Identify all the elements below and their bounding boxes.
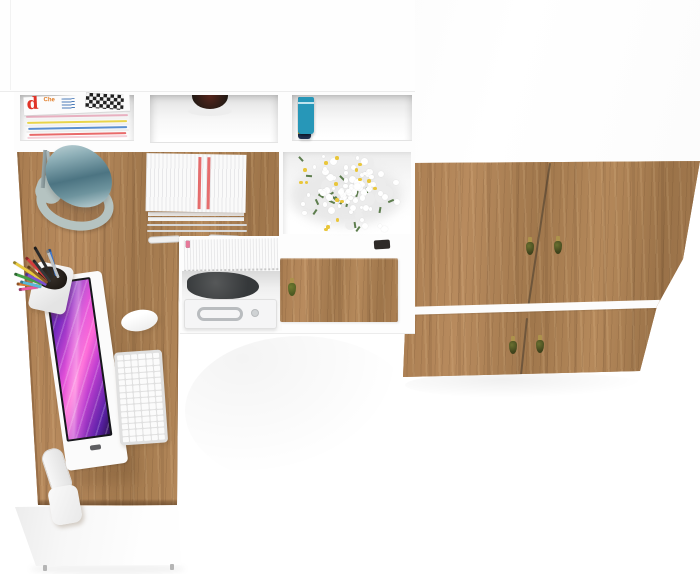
- keyboard-key: [138, 354, 145, 360]
- wardrobe-handle-lower-left: [509, 336, 517, 354]
- keyboard-key: [155, 384, 162, 390]
- daisy-petal: [344, 171, 347, 174]
- keyboard-key: [136, 417, 143, 423]
- keyboard-key: [157, 415, 164, 421]
- keyboard-key: [153, 353, 160, 359]
- keyboard-key: [144, 429, 151, 435]
- drawer-handle: [288, 278, 296, 296]
- keyboard-key: [154, 371, 161, 377]
- handle-tassel: [526, 242, 534, 255]
- daisy-petal: [362, 223, 368, 229]
- keyboard-key: [137, 429, 144, 435]
- daisy-center: [358, 163, 362, 167]
- daisy-center: [335, 198, 339, 202]
- daisy-petal: [323, 202, 327, 206]
- daisy-petal: [350, 205, 356, 211]
- keyboard-key: [149, 403, 156, 409]
- daisy-petal: [378, 191, 383, 196]
- magazine-cover-lines: [62, 98, 75, 110]
- printer-knob: [251, 309, 259, 317]
- keyboard-key: [147, 372, 154, 378]
- daisy-center: [355, 168, 359, 172]
- tabbed-papers: [184, 238, 279, 272]
- daisy-petal: [369, 207, 373, 211]
- keyboard-key: [133, 373, 140, 379]
- keyboard-key: [148, 384, 155, 390]
- keyboard-key: [121, 405, 128, 411]
- keyboard-key: [140, 379, 147, 385]
- keyboard-key: [150, 422, 157, 428]
- printer-top-cover: [187, 272, 259, 299]
- tray-wire: [147, 230, 247, 232]
- keyboard-key: [126, 386, 133, 392]
- hutch-top-left-edge: [10, 0, 11, 90]
- daisy-petal: [343, 184, 347, 188]
- handle-tassel: [554, 241, 562, 254]
- floor-shadow-under-return: [185, 336, 415, 486]
- daisy-center: [299, 181, 303, 185]
- daisy-center: [324, 161, 328, 165]
- keyboard-key: [139, 366, 146, 372]
- keyboard-key: [119, 380, 126, 386]
- daisy-petal: [393, 180, 398, 185]
- keyboard-key: [129, 424, 136, 430]
- paper-red-stripe: [207, 157, 211, 209]
- monitor-stand-foot: [47, 484, 83, 527]
- wardrobe-front-doors: [400, 156, 700, 380]
- daisy-petal: [344, 165, 349, 170]
- keyboard-key: [153, 359, 160, 365]
- keyboard-key: [117, 355, 124, 361]
- daisy-petal: [327, 174, 334, 181]
- keyboard-key: [123, 437, 130, 443]
- magazine-stack: d Che: [24, 94, 133, 142]
- keyboard-key: [142, 404, 149, 410]
- keyboard-key: [158, 428, 165, 434]
- magazine-checker-pattern: [85, 93, 124, 110]
- printer-handle: [197, 307, 243, 321]
- book-band: [298, 102, 314, 104]
- daisy-petal: [338, 189, 344, 195]
- magazine-logo-letter: d: [26, 94, 39, 114]
- keyboard-key: [125, 361, 132, 367]
- daisy-petal: [302, 211, 306, 215]
- keyboard-key: [120, 393, 127, 399]
- keyboard-key: [156, 403, 163, 409]
- keyboard-key: [141, 385, 148, 391]
- tray-papers: [146, 153, 247, 213]
- wardrobe-handle-lower-right: [536, 335, 544, 353]
- keyboard-key: [133, 379, 140, 385]
- hutch-top-panel: [0, 0, 415, 92]
- keyboard-key: [142, 398, 149, 404]
- paper-tabs: [186, 239, 276, 249]
- paper-stack-sheet: [148, 217, 244, 221]
- desk-foot-right: [170, 564, 174, 570]
- keyboard-key: [127, 399, 134, 405]
- keyboard-key: [154, 365, 161, 371]
- keyboard-key: [155, 390, 162, 396]
- keyboard-key: [143, 416, 150, 422]
- keyboard-key: [134, 392, 141, 398]
- daisy-petal: [360, 195, 366, 201]
- keyboard-key: [150, 410, 157, 416]
- paper-red-stripe: [198, 157, 202, 209]
- keyboard-key: [156, 397, 163, 403]
- keyboard-key: [143, 423, 150, 429]
- keyboard-key: [132, 367, 139, 373]
- magazine-spine-stripe: [27, 135, 127, 139]
- keyboard-key: [158, 422, 165, 428]
- keyboard-key: [134, 385, 141, 391]
- keyboard-key: [135, 404, 142, 410]
- flower-stem: [353, 222, 356, 228]
- daisy-center: [340, 200, 344, 204]
- keyboard-key: [125, 373, 132, 379]
- keyboard-key: [148, 391, 155, 397]
- daisy-center: [303, 168, 307, 172]
- keyboard-key: [136, 423, 143, 429]
- wardrobe-handle-upper-left: [526, 237, 534, 255]
- keyboard-key: [128, 411, 135, 417]
- keyboard-key: [130, 436, 137, 442]
- daisy-petal: [301, 202, 305, 206]
- desk-front-panel: [13, 503, 185, 569]
- keyboard-key: [146, 359, 153, 365]
- daisy-petal: [353, 198, 357, 202]
- daisy-center: [358, 178, 362, 182]
- daisy-petal: [322, 155, 325, 158]
- shelf-knob: [374, 239, 391, 249]
- keyboard-key: [121, 418, 128, 424]
- handle-tassel: [288, 283, 296, 296]
- daisy-center: [367, 179, 371, 183]
- keyboard-key: [127, 392, 134, 398]
- keyboard: [114, 349, 168, 445]
- keyboard-key: [121, 412, 128, 418]
- keyboard-key: [150, 416, 157, 422]
- wardrobe-handle-upper-right: [554, 236, 562, 254]
- keyboard-key: [119, 386, 126, 392]
- daisy-petal: [382, 194, 388, 200]
- keyboard-key: [122, 424, 129, 430]
- handle-tassel: [536, 340, 544, 353]
- daisy-petal: [326, 194, 332, 200]
- keyboard-key: [134, 398, 141, 404]
- keyboard-key: [135, 411, 142, 417]
- pens: [12, 232, 82, 302]
- monitor-chin-slot: [90, 444, 102, 450]
- daisy-petal: [320, 191, 326, 197]
- magazine-cover-text: Che: [44, 97, 55, 103]
- keyboard-key: [151, 428, 158, 434]
- daisy-petal: [363, 172, 367, 176]
- hutch-drawer: [280, 258, 398, 322]
- flower-stem: [299, 156, 305, 162]
- daisy-petal: [328, 207, 335, 214]
- keyboard-key: [129, 417, 136, 423]
- keyboard-key: [131, 354, 138, 360]
- daisy-petal: [348, 196, 352, 200]
- keyboard-key: [117, 361, 124, 367]
- daisy-petal: [366, 187, 370, 191]
- daisy-petal: [354, 183, 361, 190]
- daisy-petal: [381, 226, 388, 233]
- printer-compartment: [182, 271, 282, 331]
- daisy-petal: [313, 165, 316, 168]
- keyboard-key: [132, 360, 139, 366]
- keyboard-key: [146, 366, 153, 372]
- daisy-center: [335, 156, 339, 160]
- keyboard-key: [129, 430, 136, 436]
- keyboard-key: [149, 397, 156, 403]
- keyboard-key: [142, 410, 149, 416]
- keyboard-key: [141, 391, 148, 397]
- printer: [184, 299, 277, 329]
- document-tray: [138, 152, 256, 246]
- keyboard-key: [147, 378, 154, 384]
- keyboard-key: [140, 372, 147, 378]
- keyboard-key: [120, 399, 127, 405]
- keyboard-key: [146, 353, 153, 359]
- keyboard-key: [124, 355, 131, 361]
- keyboard-key: [139, 360, 146, 366]
- keyboard-key: [151, 435, 158, 441]
- keyboard-key: [128, 405, 135, 411]
- keyboard-key: [157, 409, 164, 415]
- book-row: [298, 97, 412, 141]
- keyboard-key: [118, 374, 125, 380]
- daisy-petal: [361, 158, 367, 164]
- book: [298, 97, 314, 134]
- daisy-bouquet: [282, 146, 412, 240]
- keyboard-key: [125, 367, 132, 373]
- daisy-petal: [356, 156, 360, 160]
- keyboard-key: [144, 435, 151, 441]
- keyboard-key: [137, 436, 144, 442]
- handle-tassel: [509, 341, 517, 354]
- daisy-center: [334, 182, 338, 186]
- keyboard-key: [126, 380, 133, 386]
- daisy-center: [336, 218, 340, 222]
- keyboard-key: [118, 368, 125, 374]
- desk-foot-left: [43, 565, 47, 571]
- keyboard-key: [122, 430, 129, 436]
- keyboard-key: [155, 378, 162, 384]
- product-photo-stage: d Che: [0, 0, 700, 574]
- paper-tab: [186, 241, 190, 248]
- hutch-lower-unit: [180, 236, 415, 334]
- wardrobe-sheen: [400, 156, 700, 380]
- daisy-petal: [338, 204, 341, 207]
- flower-stem: [306, 175, 312, 177]
- tray-foot-left: [148, 235, 181, 244]
- tray-wire: [147, 224, 247, 226]
- daisy-petal: [323, 167, 327, 171]
- keyboard-key: [158, 434, 165, 440]
